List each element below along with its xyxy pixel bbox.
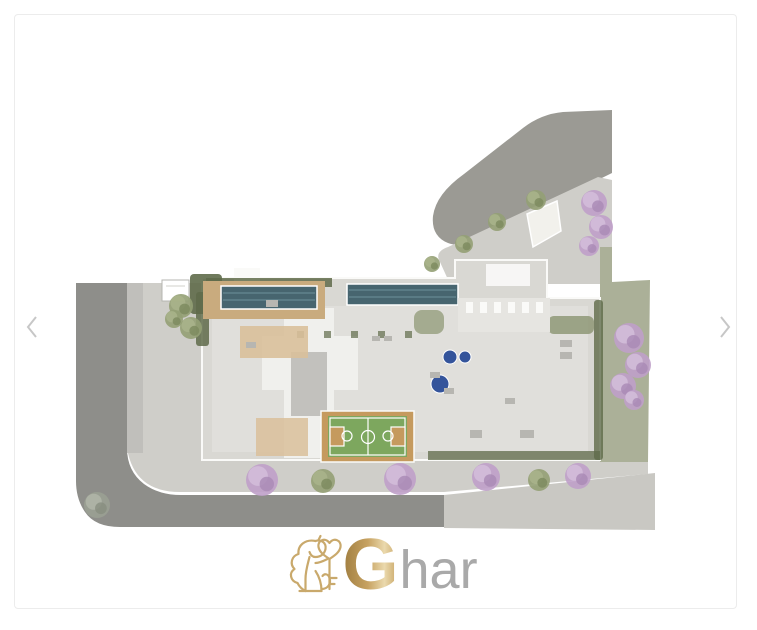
chevron-right-icon: [714, 312, 736, 342]
purple-tree: [592, 200, 604, 212]
purple-tree: [484, 474, 497, 487]
gray-tree: [95, 502, 107, 514]
kids-room: [256, 418, 308, 456]
lap-pool-center: [347, 284, 458, 305]
purple-tree: [599, 225, 610, 236]
carousel-prev-button[interactable]: [10, 302, 54, 352]
driveway-strip: [127, 283, 143, 453]
ghar-logo: G har: [285, 531, 490, 604]
olive-tree: [537, 478, 547, 488]
canopy-roof-right: [486, 264, 530, 286]
logo-text: har: [399, 540, 477, 599]
olive-tree: [535, 198, 544, 207]
olive-tree: [173, 317, 181, 325]
purple-tree: [588, 244, 597, 253]
olive-tree: [463, 242, 471, 250]
purple-tree: [398, 476, 412, 490]
purple-tree: [627, 335, 641, 349]
basketball-court: [321, 411, 414, 462]
olive-tree: [179, 304, 190, 315]
carousel-next-button[interactable]: [703, 302, 747, 352]
olive-tree: [189, 326, 199, 336]
logo-letter-g: G: [342, 531, 398, 599]
building: [162, 260, 603, 462]
chevron-left-icon: [21, 312, 43, 342]
olive-tree: [321, 479, 332, 490]
purple-tree: [636, 362, 648, 374]
olive-tree: [496, 220, 504, 228]
purple-tree: [260, 477, 274, 491]
purple-tree: [576, 473, 588, 485]
olive-tree: [431, 262, 438, 269]
elevator-core: [291, 352, 327, 416]
lion-key-icon: [290, 536, 340, 591]
purple-tree: [633, 398, 642, 407]
